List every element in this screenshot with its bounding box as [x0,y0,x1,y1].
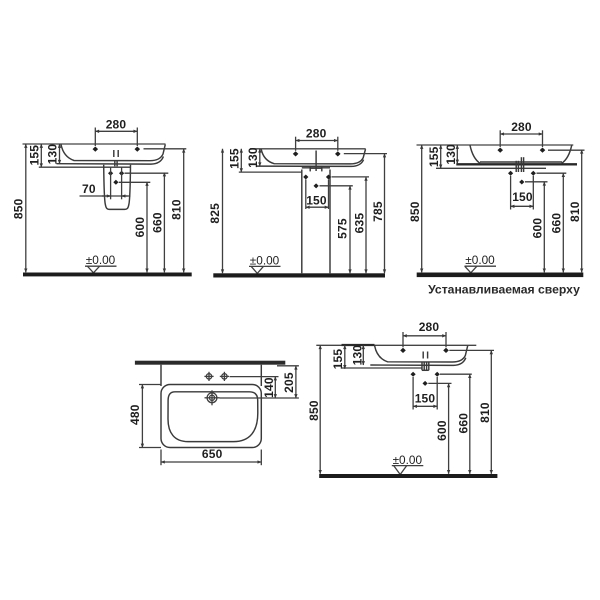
svg-text:810: 810 [478,402,492,423]
svg-text:Устанавливаемая сверху: Устанавливаемая сверху [428,283,580,297]
svg-text:650: 650 [202,447,223,461]
svg-text:600: 600 [133,217,147,238]
svg-text:150: 150 [415,392,436,406]
svg-text:280: 280 [106,118,127,132]
svg-text:155: 155 [331,349,345,370]
svg-text:480: 480 [128,404,142,425]
svg-text:850: 850 [11,198,25,219]
svg-text:280: 280 [419,320,440,334]
svg-text:70: 70 [82,182,96,196]
svg-text:575: 575 [336,218,350,239]
svg-text:825: 825 [208,203,222,224]
svg-text:660: 660 [550,213,564,234]
svg-text:155: 155 [28,145,42,166]
svg-text:660: 660 [457,413,471,434]
svg-text:810: 810 [568,201,582,222]
svg-text:±0.00: ±0.00 [250,253,280,267]
svg-text:810: 810 [170,199,184,220]
svg-text:140: 140 [262,377,276,398]
svg-text:130: 130 [444,144,458,165]
svg-text:600: 600 [435,420,449,441]
svg-text:280: 280 [306,126,327,140]
svg-text:155: 155 [427,146,441,167]
svg-text:600: 600 [531,218,545,239]
svg-text:205: 205 [282,372,296,393]
svg-text:660: 660 [151,212,165,233]
svg-text:150: 150 [512,190,533,204]
svg-text:±0.00: ±0.00 [393,453,423,467]
svg-text:850: 850 [408,201,422,222]
svg-text:±0.00: ±0.00 [86,253,116,267]
svg-text:850: 850 [307,400,321,421]
svg-text:150: 150 [306,194,327,208]
svg-text:130: 130 [46,144,60,165]
svg-text:±0.00: ±0.00 [465,253,495,267]
svg-text:155: 155 [228,148,242,169]
svg-text:130: 130 [246,147,260,168]
svg-text:635: 635 [352,213,366,234]
svg-text:785: 785 [371,201,385,222]
svg-text:130: 130 [351,345,365,366]
svg-text:280: 280 [511,120,532,134]
